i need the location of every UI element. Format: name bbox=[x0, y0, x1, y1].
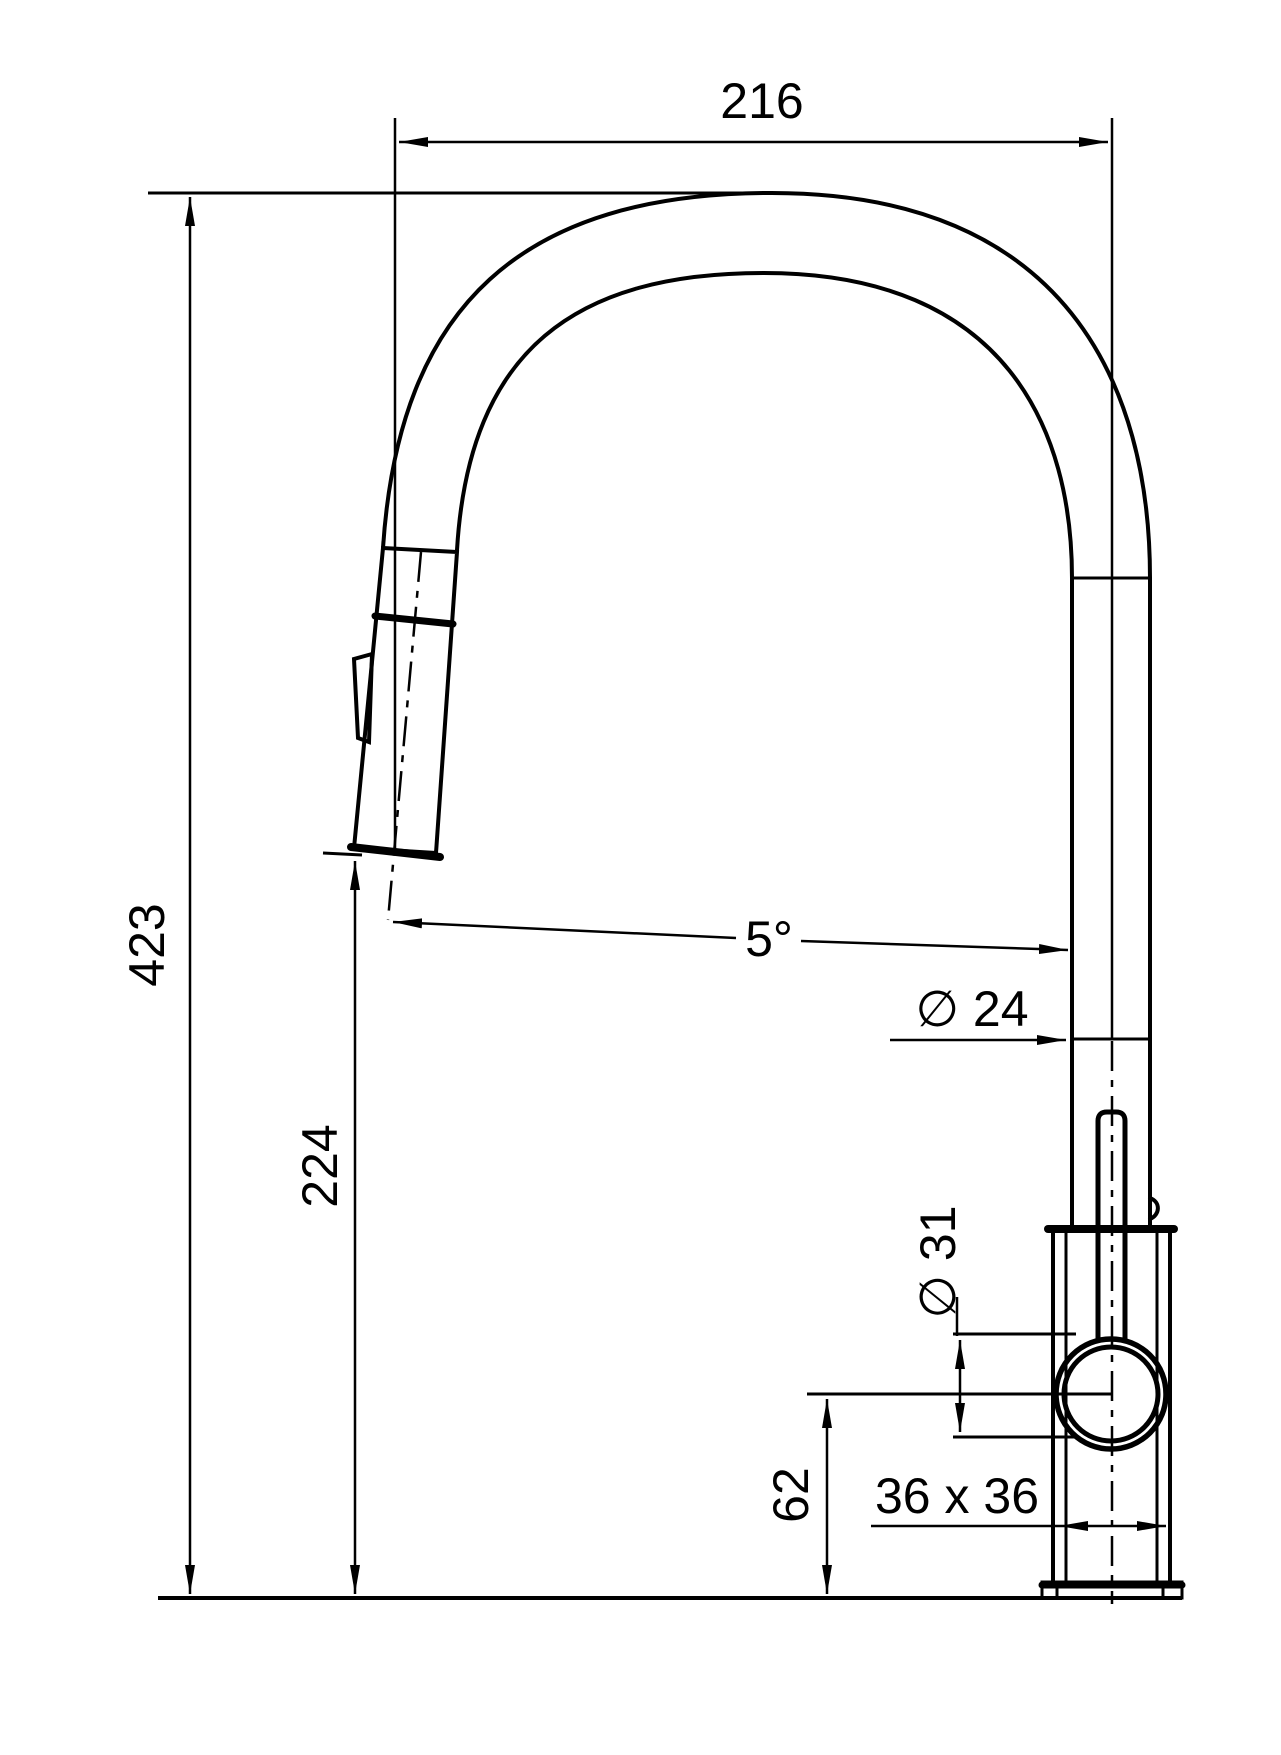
spray-head-centerline bbox=[388, 552, 421, 920]
faucet-outline bbox=[351, 193, 1182, 1604]
spray-head-clip bbox=[354, 654, 372, 742]
label-base-size: 36 x 36 bbox=[875, 1468, 1039, 1524]
spout-outlet-tick bbox=[323, 853, 362, 855]
spout-outer-arc bbox=[383, 193, 1150, 578]
label-joint-diameter: ∅ 31 bbox=[910, 1205, 966, 1318]
technical-drawing-canvas: 216 423 224 5° ∅ 24 ∅ 31 62 36 x 36 bbox=[0, 0, 1281, 1755]
dim-line-angle-right bbox=[801, 941, 1068, 950]
label-outlet-height: 224 bbox=[292, 1124, 348, 1207]
label-spout-angle: 5° bbox=[745, 911, 793, 967]
dim-line-angle-left bbox=[393, 922, 736, 938]
label-joint-center-height: 62 bbox=[763, 1467, 819, 1523]
faucet-dimension-drawing: 216 423 224 5° ∅ 24 ∅ 31 62 36 x 36 bbox=[0, 0, 1281, 1755]
reference-lines bbox=[148, 118, 1182, 1598]
spout-inner-arc bbox=[457, 273, 1072, 578]
label-top-width: 216 bbox=[720, 73, 803, 129]
dimension-lines bbox=[190, 142, 1166, 1594]
label-pipe-diameter: ∅ 24 bbox=[915, 981, 1028, 1037]
label-overall-height: 423 bbox=[119, 903, 175, 986]
dimension-labels: 216 423 224 5° ∅ 24 ∅ 31 62 36 x 36 bbox=[119, 73, 1039, 1524]
